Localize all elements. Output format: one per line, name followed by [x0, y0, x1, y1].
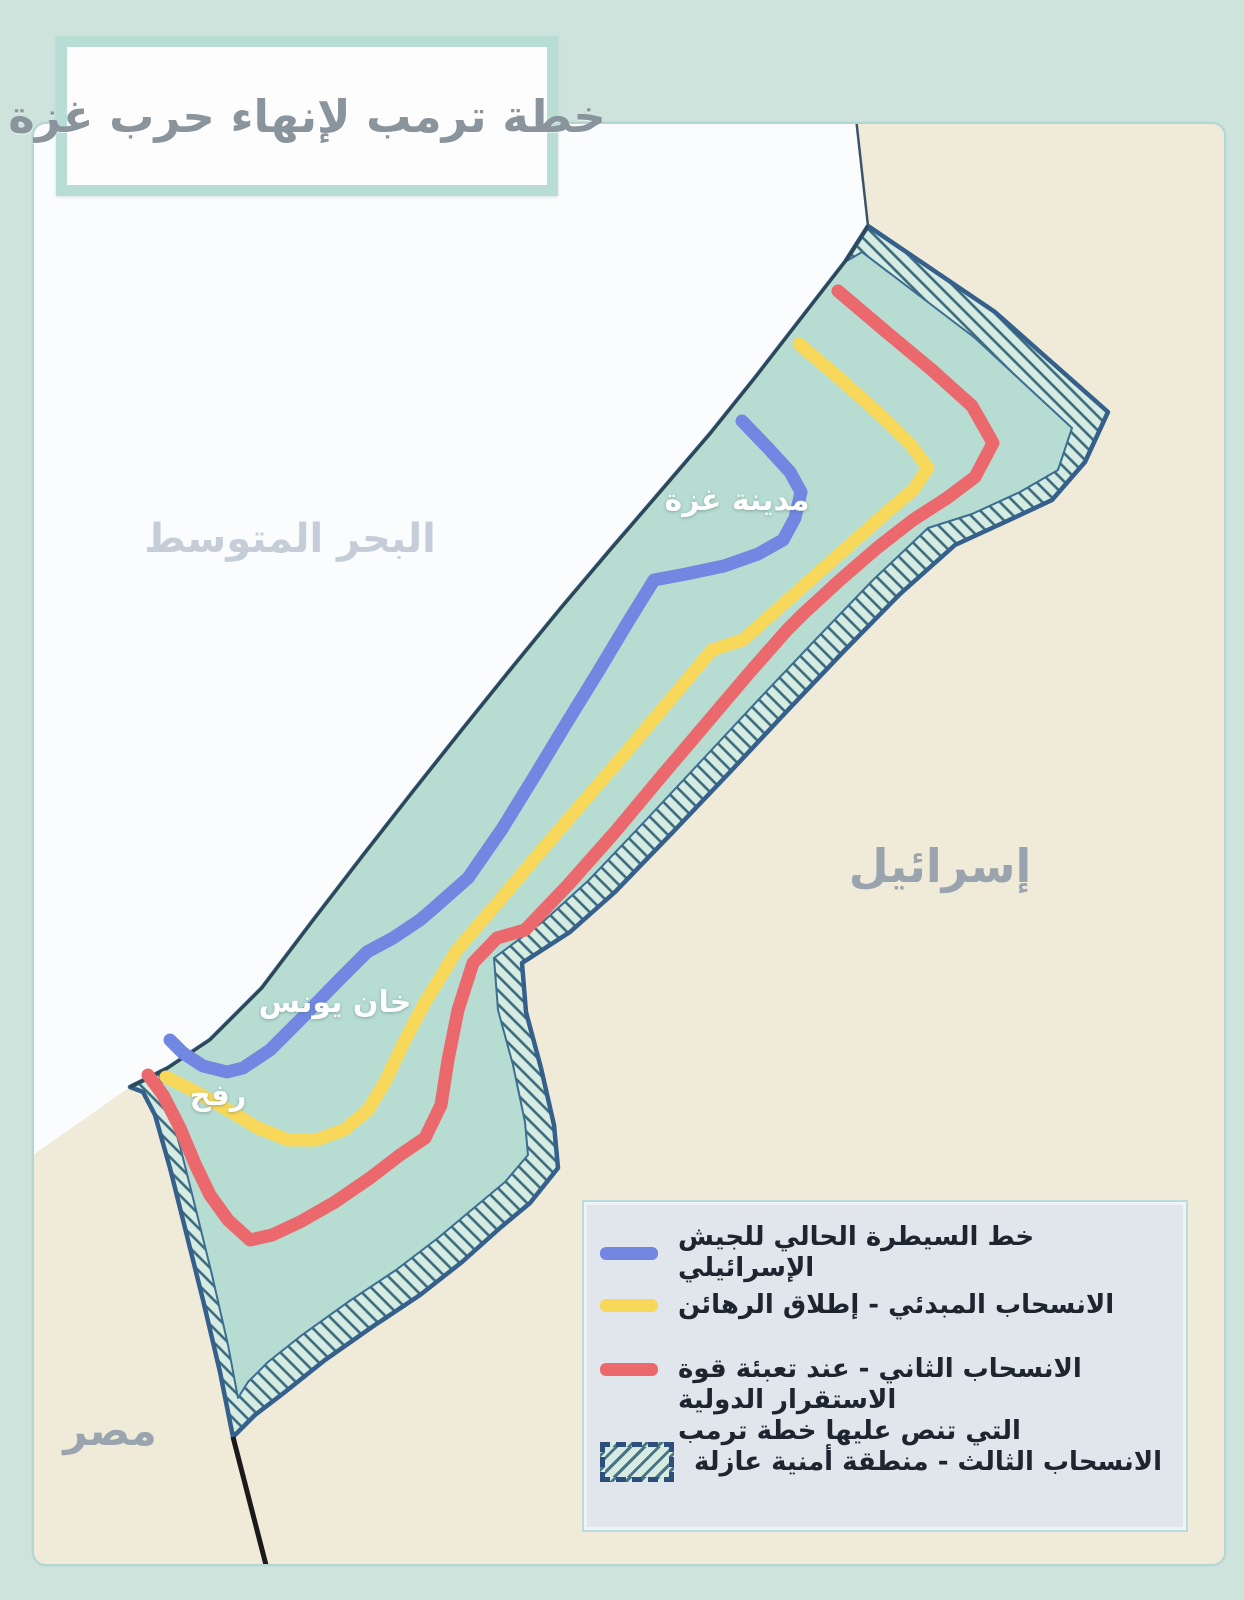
map-legend: خط السيطرة الحالي للجيش الإسرائيلي الانس…	[582, 1200, 1188, 1532]
label-israel: إسرائيل	[849, 839, 1032, 894]
legend-label-second-withdrawal-line1: الانسحاب الثاني - عند تعبئة قوة الاستقرا…	[678, 1354, 1172, 1416]
legend-item-third-withdrawal: الانسحاب الثالث - منطقة أمنية عازلة	[600, 1442, 1172, 1482]
red-line-swatch	[600, 1363, 658, 1376]
hatched-area-icon	[600, 1442, 674, 1482]
label-rafah: رفح	[190, 1078, 247, 1112]
legend-item-second-withdrawal: الانسحاب الثاني - عند تعبئة قوة الاستقرا…	[600, 1354, 1172, 1447]
label-khan-younis: خان يونس	[259, 985, 412, 1020]
page-background: البحر المتوسط مدينة غزة خان يونس رفح إسر…	[0, 0, 1244, 1600]
buffer-zone-swatch	[600, 1442, 674, 1482]
label-egypt: مصر	[61, 1406, 157, 1456]
legend-label-initial-withdrawal: الانسحاب المبدئي - إطلاق الرهائن	[678, 1290, 1114, 1321]
legend-label-current-control: خط السيطرة الحالي للجيش الإسرائيلي	[678, 1222, 1172, 1284]
legend-label-third-withdrawal: الانسحاب الثالث - منطقة أمنية عازلة	[694, 1447, 1162, 1478]
legend-item-current-control: خط السيطرة الحالي للجيش الإسرائيلي	[600, 1222, 1172, 1284]
yellow-line-swatch	[600, 1299, 658, 1312]
label-gaza-city: مدينة غزة	[665, 483, 810, 518]
map-title-box: خطة ترمب لإنهاء حرب غزة	[56, 36, 558, 196]
label-mediterranean-sea: البحر المتوسط	[144, 516, 436, 562]
page-title: خطة ترمب لإنهاء حرب غزة	[8, 90, 606, 143]
blue-line-swatch	[600, 1247, 658, 1260]
legend-item-initial-withdrawal: الانسحاب المبدئي - إطلاق الرهائن	[600, 1290, 1172, 1321]
